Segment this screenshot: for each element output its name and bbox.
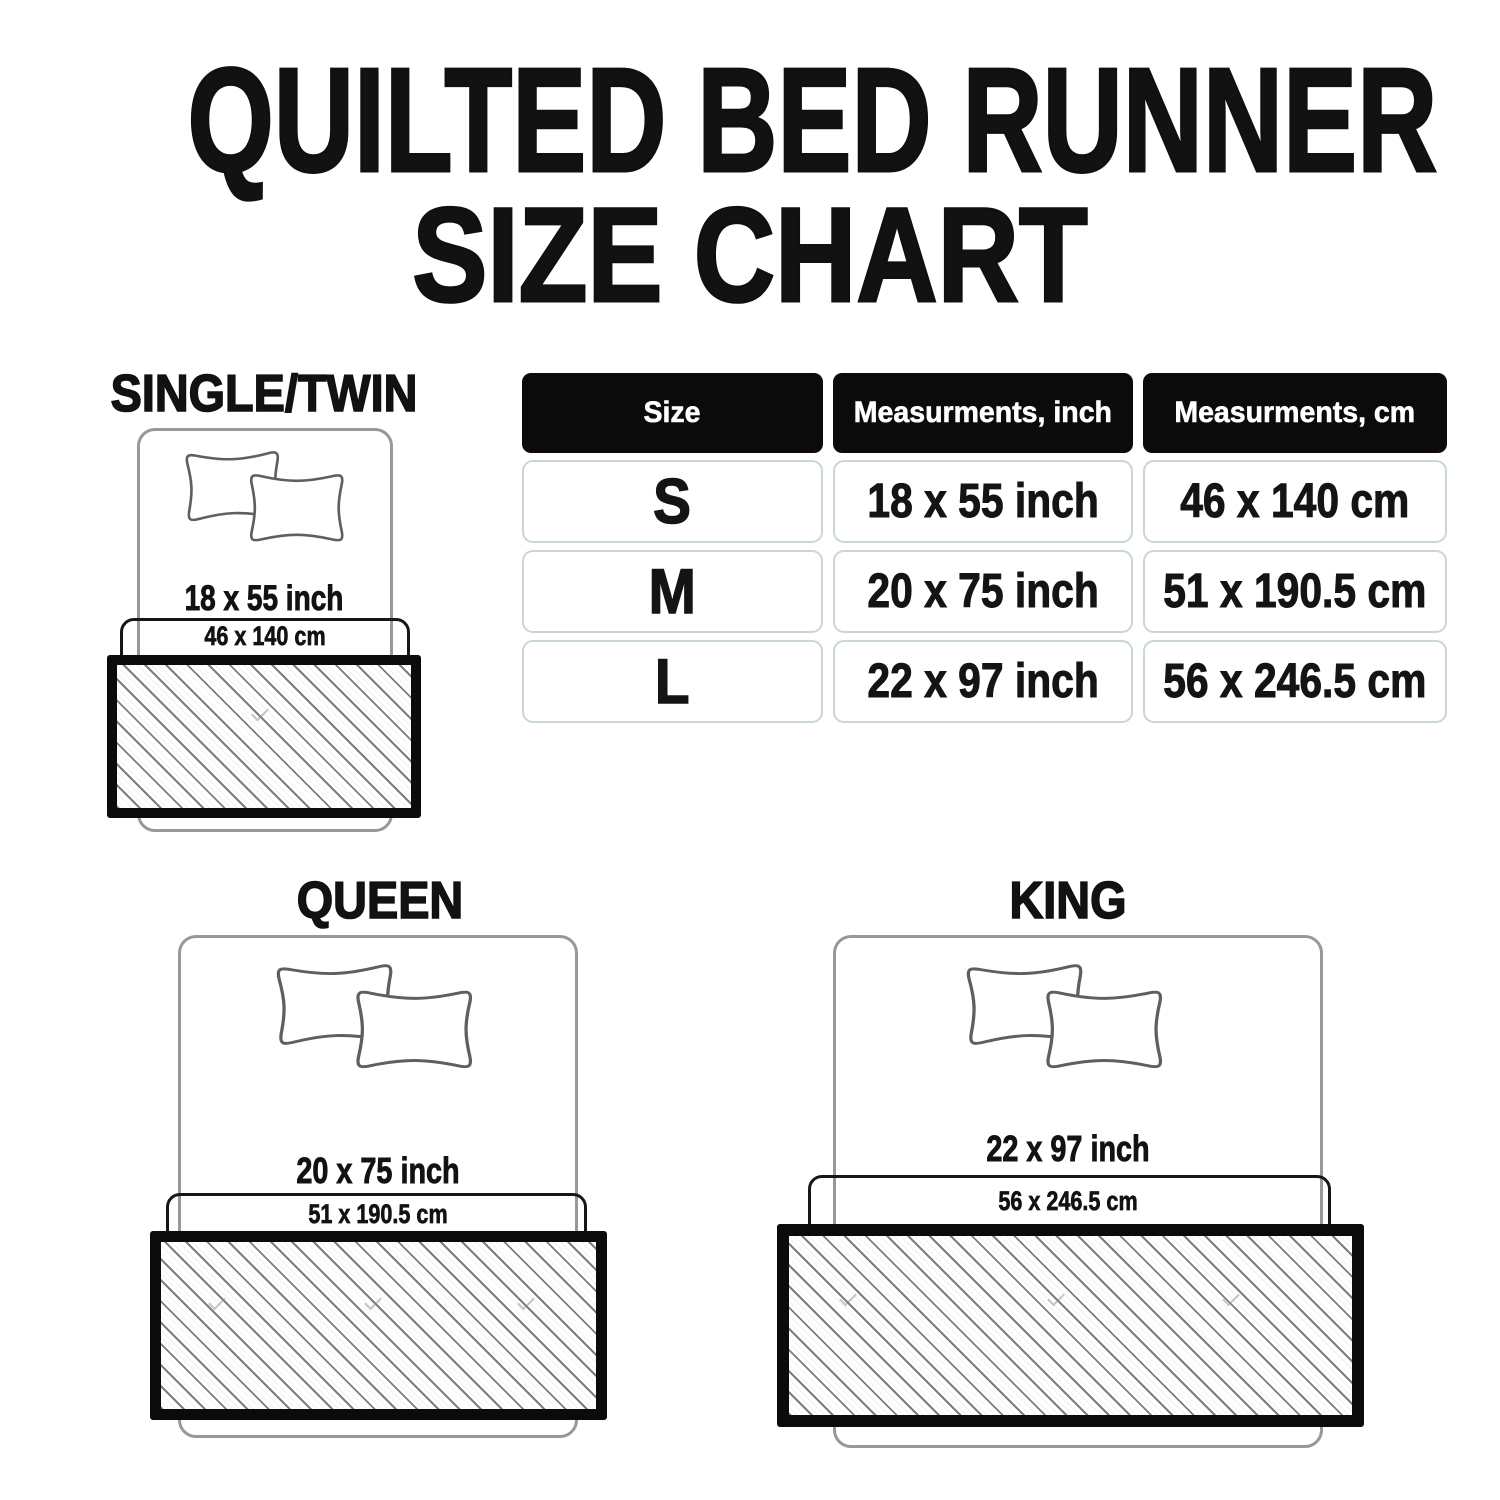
table-row-m-cm: 51 x 190.5 cm (1143, 550, 1447, 633)
page-title-line2: SIZE CHART (0, 186, 1500, 326)
queen-cm-measurement: 51 x 190.5 cm (128, 1199, 628, 1229)
table-row-l-size: L (522, 640, 823, 723)
stitch-mark (1047, 1289, 1065, 1307)
bed-runner-queen (150, 1231, 607, 1420)
queen-label: QUEEN (130, 875, 630, 927)
bed-runner-king (777, 1224, 1364, 1427)
single-inch-measurement: 18 x 55 inch (14, 580, 514, 618)
stitch-mark (365, 1293, 383, 1311)
page-title-line1: QUILTED BED RUNNER (0, 46, 1500, 196)
table-row-m-inch: 20 x 75 inch (833, 550, 1133, 633)
king-label: KING (818, 875, 1318, 927)
single-twin-label: SINGLE/TWIN (14, 368, 514, 420)
size-chart-infographic: QUILTED BED RUNNER SIZE CHART Size Measu… (0, 0, 1500, 1500)
table-row-s-size: S (522, 460, 823, 543)
bed-runner-single (107, 655, 421, 818)
table-row-m-size: M (522, 550, 823, 633)
table-header-size: Size (522, 373, 823, 453)
table-header-cm: Measurments, cm (1143, 373, 1447, 453)
queen-inch-measurement: 20 x 75 inch (128, 1152, 628, 1190)
stitch-mark (208, 1293, 226, 1311)
table-row-l-cm: 56 x 246.5 cm (1143, 640, 1447, 723)
table-row-l-inch: 22 x 97 inch (833, 640, 1133, 723)
single-cm-measurement: 46 x 140 cm (15, 621, 515, 651)
table-header-inch: Measurments, inch (833, 373, 1133, 453)
king-inch-measurement: 22 x 97 inch (818, 1130, 1318, 1168)
table-row-s-inch: 18 x 55 inch (833, 460, 1133, 543)
size-table: Size Measurments, inch Measurments, cm S… (522, 373, 1447, 723)
pillows-icon-single (172, 444, 354, 550)
page-title-line2-text: SIZE CHART (120, 186, 1380, 326)
table-row-s-cm: 46 x 140 cm (1143, 460, 1447, 543)
king-cm-measurement: 56 x 246.5 cm (818, 1186, 1318, 1216)
pillows-icon-king (950, 956, 1175, 1078)
pillows-icon-queen (260, 956, 485, 1078)
stitch-mark (517, 1293, 535, 1311)
stitch-mark (1222, 1289, 1240, 1307)
page-title-line1-text: QUILTED BED RUNNER (188, 46, 1313, 196)
stitch-mark (251, 704, 269, 722)
stitch-mark (839, 1289, 857, 1307)
